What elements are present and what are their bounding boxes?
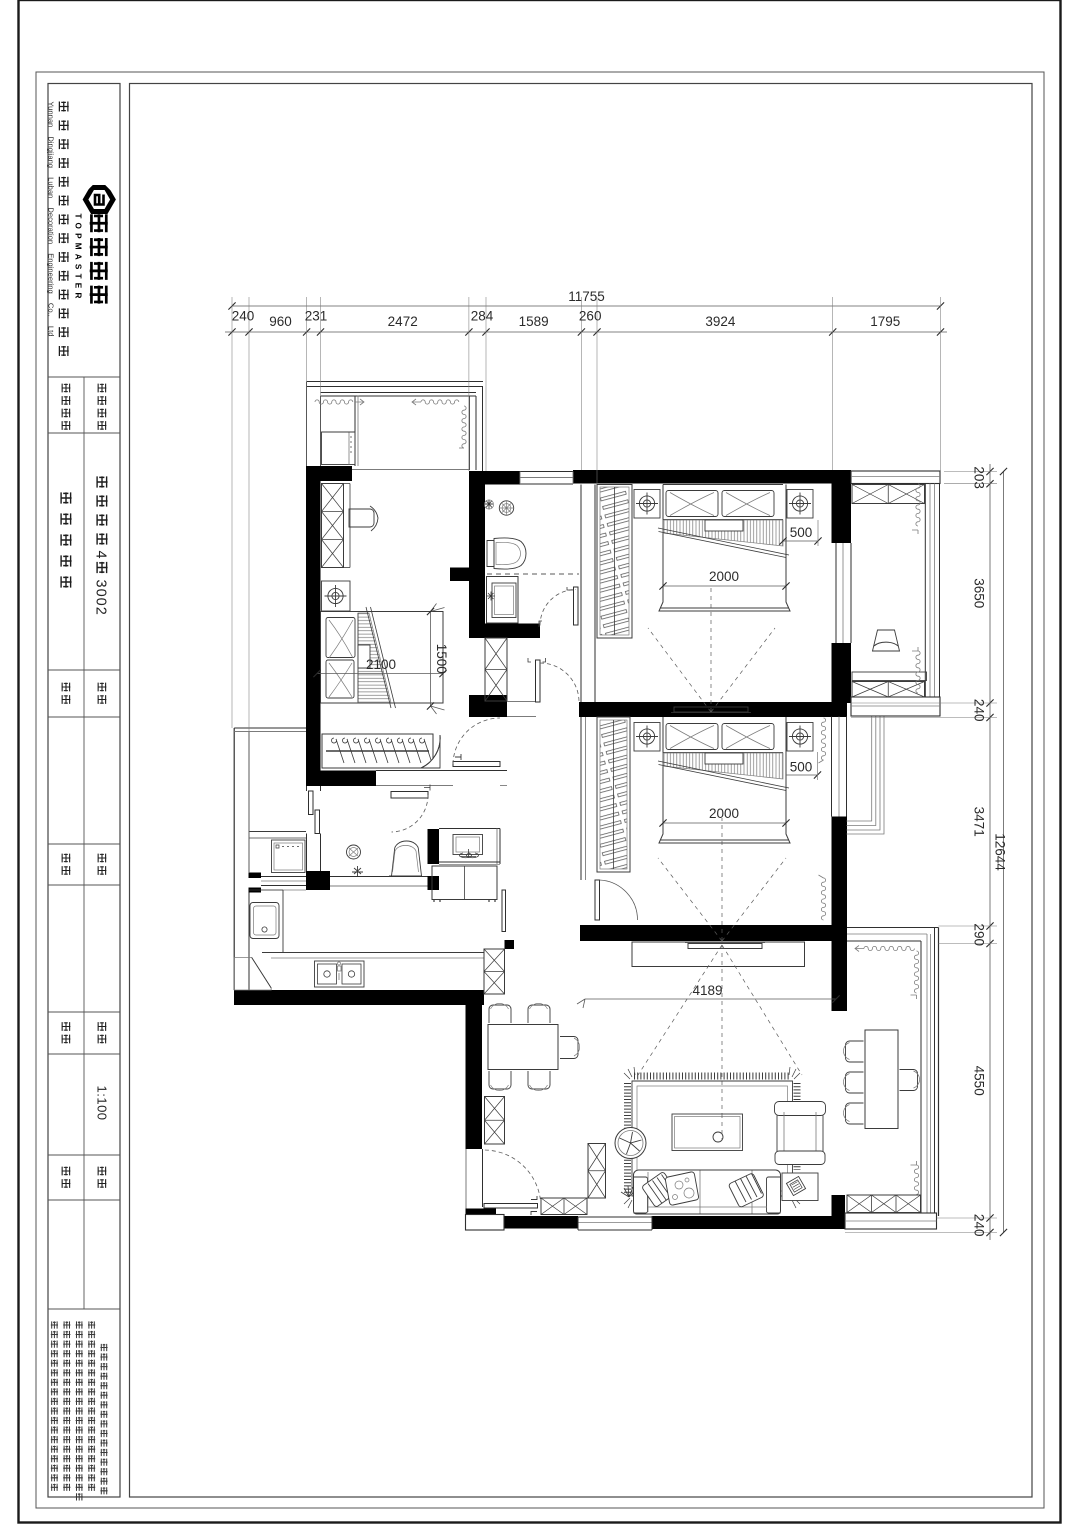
svg-text:4189: 4189 bbox=[692, 983, 722, 998]
svg-text:960: 960 bbox=[269, 314, 292, 329]
svg-text:500: 500 bbox=[790, 525, 813, 540]
svg-text:2472: 2472 bbox=[388, 314, 418, 329]
svg-text:3471: 3471 bbox=[972, 807, 987, 837]
svg-text:2000: 2000 bbox=[709, 569, 739, 584]
svg-text:240: 240 bbox=[972, 699, 987, 722]
svg-text:231: 231 bbox=[305, 309, 328, 324]
svg-text:284: 284 bbox=[471, 309, 494, 324]
svg-text:1500: 1500 bbox=[434, 644, 449, 674]
svg-text:3002: 3002 bbox=[93, 580, 109, 616]
svg-text:240: 240 bbox=[232, 309, 255, 324]
svg-text:290: 290 bbox=[972, 923, 987, 946]
svg-text:4550: 4550 bbox=[972, 1066, 987, 1096]
svg-text:12644: 12644 bbox=[993, 833, 1008, 871]
svg-text:1795: 1795 bbox=[870, 314, 900, 329]
svg-text:11755: 11755 bbox=[568, 289, 605, 304]
svg-text:4: 4 bbox=[93, 551, 109, 559]
svg-text:240: 240 bbox=[972, 1214, 987, 1237]
svg-text:1:100: 1:100 bbox=[95, 1086, 110, 1121]
svg-text:TOPMASTER: TOPMASTER bbox=[74, 214, 83, 303]
svg-text:3650: 3650 bbox=[972, 578, 987, 608]
svg-text:2100: 2100 bbox=[366, 657, 396, 672]
svg-text:2000: 2000 bbox=[709, 806, 739, 821]
svg-text:Yunnan Dingjiang Luban Decorat: Yunnan Dingjiang Luban Decoration Engine… bbox=[47, 102, 56, 337]
svg-text:203: 203 bbox=[972, 466, 987, 489]
svg-text:1589: 1589 bbox=[519, 314, 549, 329]
svg-text:500: 500 bbox=[790, 760, 813, 775]
svg-text:3924: 3924 bbox=[705, 314, 736, 329]
svg-text:260: 260 bbox=[579, 309, 602, 324]
